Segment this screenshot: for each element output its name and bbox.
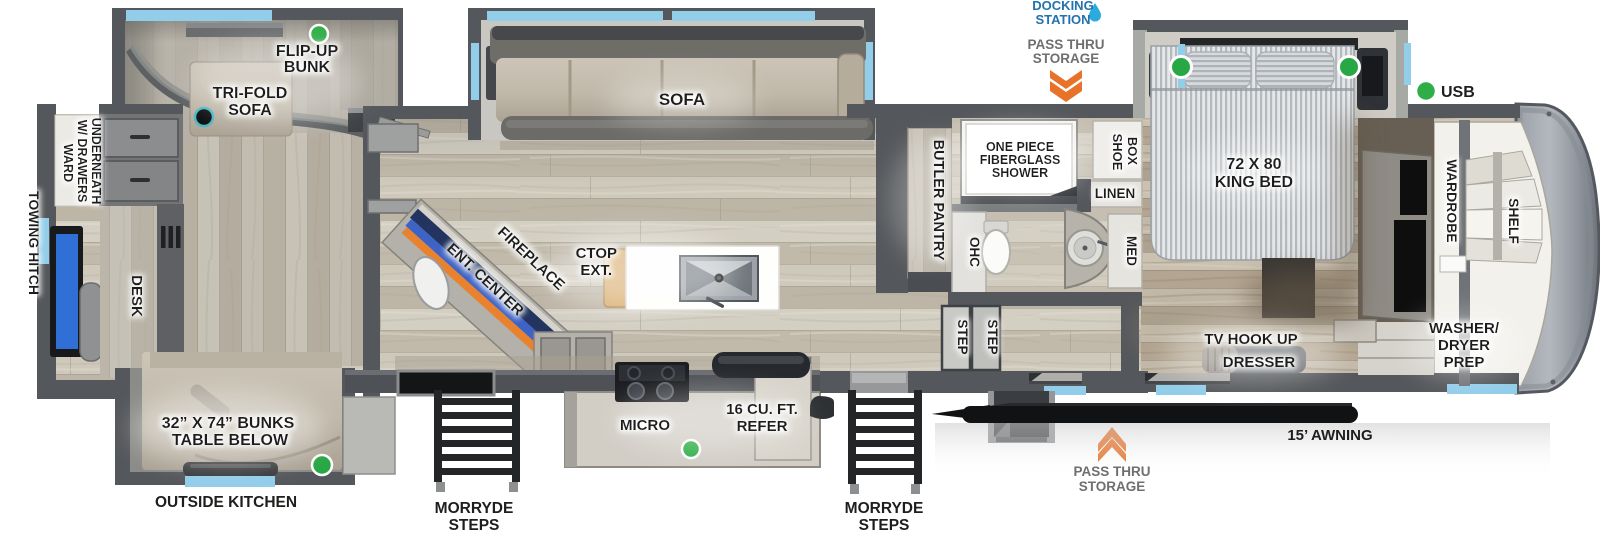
svg-text:MICRO: MICRO bbox=[620, 417, 670, 434]
svg-text:SHOE: SHOE bbox=[1110, 134, 1125, 171]
svg-text:FLIP-UP: FLIP-UP bbox=[276, 43, 339, 60]
svg-text:72 X 80: 72 X 80 bbox=[1226, 156, 1281, 173]
svg-text:STORAGE: STORAGE bbox=[1079, 479, 1146, 494]
svg-text:PASS THRU: PASS THRU bbox=[1027, 37, 1104, 52]
svg-text:DRESSER: DRESSER bbox=[1223, 354, 1296, 371]
svg-text:OHC: OHC bbox=[967, 237, 982, 267]
svg-text:KING BED: KING BED bbox=[1215, 174, 1293, 191]
svg-text:FIBERGLASS: FIBERGLASS bbox=[980, 153, 1061, 167]
svg-text:SOFA: SOFA bbox=[228, 102, 272, 119]
svg-text:STEP: STEP bbox=[955, 319, 970, 354]
svg-text:SHOWER: SHOWER bbox=[992, 166, 1048, 180]
svg-text:STEPS: STEPS bbox=[449, 517, 500, 534]
svg-text:PASS THRU: PASS THRU bbox=[1073, 464, 1150, 479]
svg-text:MED: MED bbox=[1124, 236, 1139, 266]
svg-text:ONE PIECE: ONE PIECE bbox=[986, 140, 1054, 154]
svg-text:TRI-FOLD: TRI-FOLD bbox=[213, 85, 288, 102]
svg-text:MORRYDE: MORRYDE bbox=[845, 500, 924, 517]
svg-text:STORAGE: STORAGE bbox=[1033, 51, 1100, 66]
svg-text:TV HOOK UP: TV HOOK UP bbox=[1204, 331, 1297, 348]
svg-text:SOFA: SOFA bbox=[659, 90, 705, 109]
svg-text:EXT.: EXT. bbox=[580, 262, 612, 279]
svg-text:WARDROBE: WARDROBE bbox=[1444, 159, 1460, 242]
svg-text:MORRYDE: MORRYDE bbox=[435, 500, 514, 517]
svg-text:UNDERNEATH: UNDERNEATH bbox=[89, 118, 103, 205]
svg-text:USB: USB bbox=[1441, 84, 1475, 101]
svg-text:WASHER/: WASHER/ bbox=[1429, 320, 1500, 337]
svg-text:15’ AWNING: 15’ AWNING bbox=[1287, 427, 1372, 444]
svg-text:TABLE BELOW: TABLE BELOW bbox=[172, 432, 289, 449]
svg-text:TOWING HITCH: TOWING HITCH bbox=[26, 191, 42, 295]
svg-text:BUNK: BUNK bbox=[284, 59, 331, 76]
svg-text:DRYER: DRYER bbox=[1438, 337, 1490, 354]
svg-text:CTOP: CTOP bbox=[576, 245, 617, 262]
svg-text:LINEN: LINEN bbox=[1095, 186, 1136, 201]
svg-text:WARD: WARD bbox=[61, 144, 75, 182]
svg-text:BUTLER PANTRY: BUTLER PANTRY bbox=[930, 140, 946, 261]
svg-text:STEPS: STEPS bbox=[859, 517, 910, 534]
svg-text:STEP: STEP bbox=[985, 319, 1000, 354]
svg-text:DESK: DESK bbox=[128, 275, 145, 317]
svg-text:16 CU. FT.: 16 CU. FT. bbox=[726, 401, 798, 418]
svg-text:STATION: STATION bbox=[1035, 12, 1090, 27]
svg-text:OUTSIDE KITCHEN: OUTSIDE KITCHEN bbox=[155, 494, 297, 511]
svg-text:W/ DRAWERS: W/ DRAWERS bbox=[75, 120, 89, 203]
svg-text:SHELF: SHELF bbox=[1506, 198, 1522, 244]
svg-text:BOX: BOX bbox=[1125, 137, 1140, 166]
svg-text:32” X 74” BUNKS: 32” X 74” BUNKS bbox=[162, 415, 295, 432]
svg-text:PREP: PREP bbox=[1444, 354, 1485, 371]
svg-text:REFER: REFER bbox=[737, 418, 788, 435]
